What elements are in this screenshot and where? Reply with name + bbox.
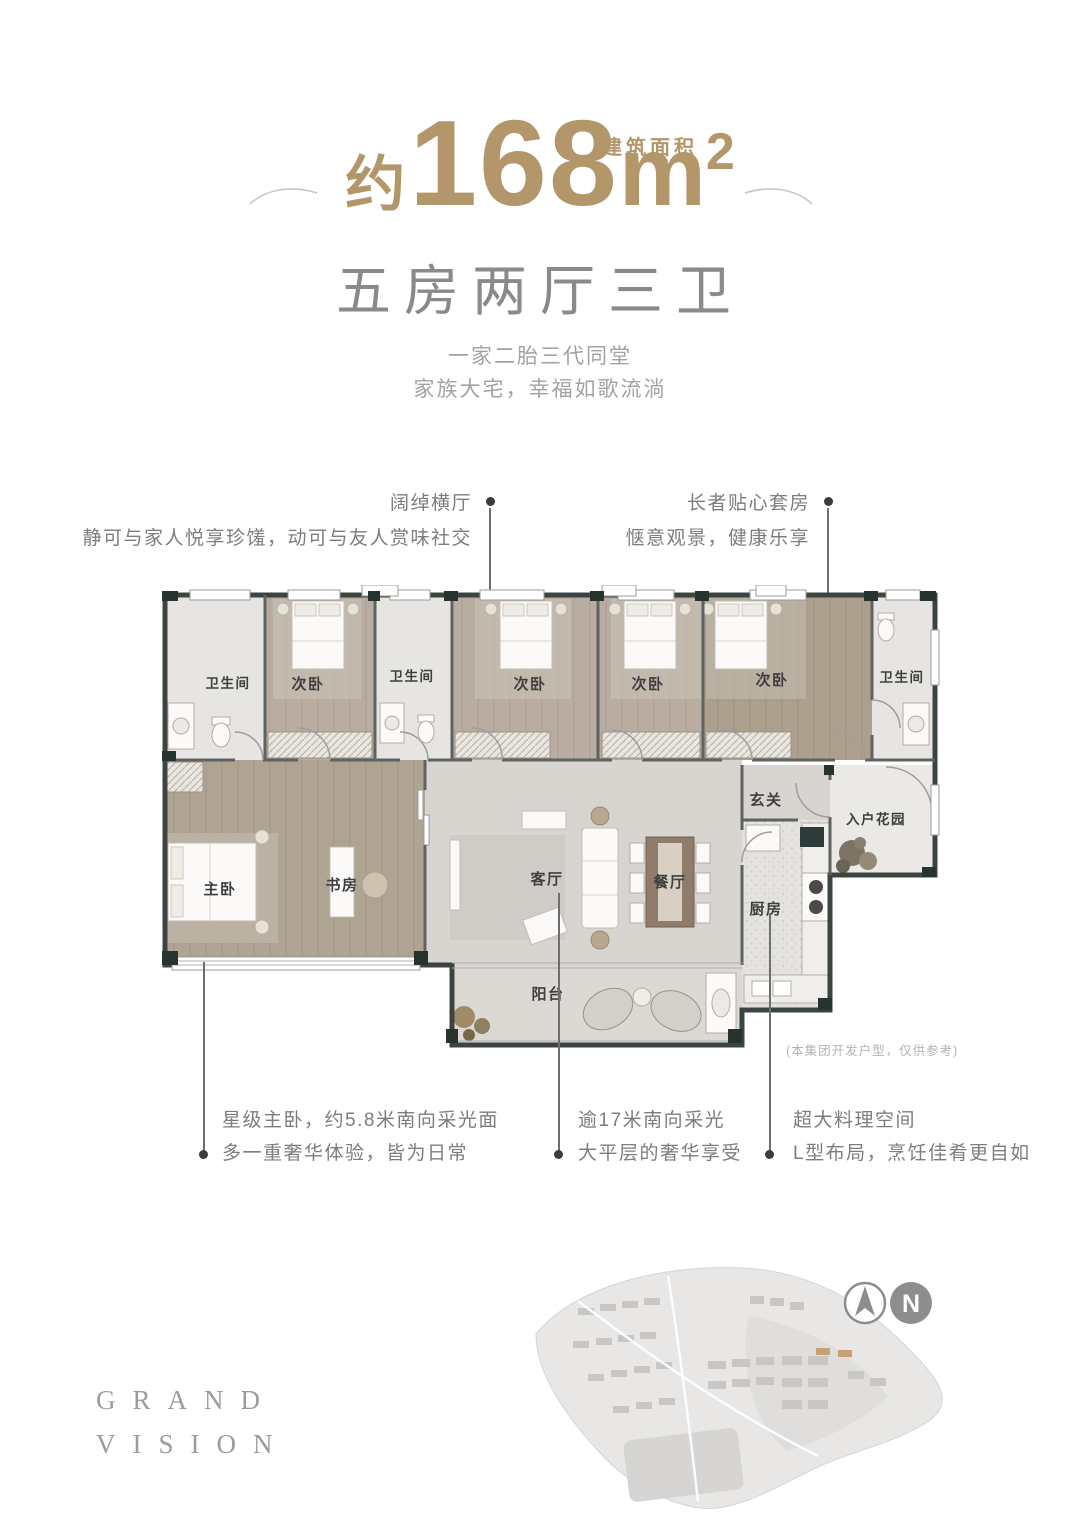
callout-lighting: 逾17米南向采光 大平层的奢华享受	[578, 1104, 742, 1170]
room-label-bedroom-2: 次卧	[513, 675, 546, 693]
room-label-dining-room: 餐厅	[653, 873, 686, 891]
brand-line2: VISION	[96, 1422, 290, 1466]
swoosh-left-icon	[248, 182, 320, 208]
compass-n-letter: N	[902, 1290, 920, 1318]
floorplan-poster: 建筑面积 约168m2 五房两厅三卫 一家二胎三代同堂 家族大宅，幸福如歌流淌 …	[0, 0, 1080, 1513]
callout-master-line1: 星级主卧，约5.8米南向采光面	[222, 1104, 499, 1137]
room-label-foyer: 玄关	[749, 791, 782, 809]
callout-lighting-line2: 大平层的奢华享受	[578, 1137, 742, 1170]
room-label-kitchen: 厨房	[749, 900, 782, 918]
callout-elder-desc: 惬意观景，健康乐享	[500, 522, 810, 555]
callout-kitchen-line1: 超大料理空间	[793, 1104, 1031, 1137]
room-label-bedroom-4: 次卧	[755, 671, 788, 689]
room-label-study: 书房	[325, 876, 358, 894]
callout-hall: 阔绰横厅 静可与家人悦享珍馐，动可与友人赏味社交	[0, 487, 472, 555]
callout-lighting-line	[558, 893, 560, 1151]
area-approx: 约	[345, 155, 405, 215]
callout-master-line2: 多一重奢华体验，皆为日常	[222, 1137, 499, 1170]
callout-hall-dot	[486, 497, 495, 506]
floor-plan: 卫生间 次卧 卫生间 次卧 次卧 次卧 卫生间 玄关 入户花园 主卧 书房 客厅…	[150, 585, 950, 1065]
bed-4	[702, 597, 806, 699]
callout-kitchen-line	[769, 913, 771, 1151]
tagline-line1: 一家二胎三代同堂	[0, 340, 1080, 370]
area-unit: m	[619, 122, 706, 220]
callout-elder-title: 长者贴心套房	[500, 487, 810, 520]
tagline-line2: 家族大宅，幸福如歌流淌	[0, 373, 1080, 403]
callout-master-dot	[199, 1150, 208, 1159]
room-label-bath-2: 卫生间	[390, 668, 435, 684]
callout-hall-title: 阔绰横厅	[0, 487, 472, 520]
room-label-bedroom-3: 次卧	[631, 675, 664, 693]
area-exponent: 2	[706, 126, 735, 178]
callout-master: 星级主卧，约5.8米南向采光面 多一重奢华体验，皆为日常	[222, 1104, 499, 1170]
callout-lighting-line1: 逾17米南向采光	[578, 1104, 742, 1137]
disclaimer: (本集团开发户型，仅供参考)	[786, 1040, 958, 1059]
area-number: 168	[409, 102, 619, 224]
room-label-bath-3: 卫生间	[880, 669, 925, 685]
swoosh-right-icon	[742, 182, 814, 208]
callout-master-line	[203, 962, 205, 1152]
area-headline: 约168m2	[0, 102, 1080, 224]
callout-kitchen: 超大料理空间 L型布局，烹饪佳肴更自如	[793, 1104, 1031, 1170]
room-label-bedroom-1: 次卧	[291, 675, 324, 693]
callout-elder: 长者贴心套房 惬意观景，健康乐享	[500, 487, 810, 555]
brand-line1: GRAND	[96, 1378, 290, 1422]
room-label-bath-1: 卫生间	[206, 675, 251, 691]
compass-icon: N	[842, 1280, 938, 1328]
brand-logo: GRAND VISION	[96, 1378, 290, 1466]
callout-lighting-dot	[554, 1150, 563, 1159]
room-label-master-bedroom: 主卧	[203, 880, 236, 898]
callout-kitchen-line2: L型布局，烹饪佳肴更自如	[793, 1137, 1031, 1170]
callout-hall-desc: 静可与家人悦享珍馐，动可与友人赏味社交	[0, 522, 472, 555]
layout-title: 五房两厅三卫	[0, 246, 1080, 326]
callout-elder-dot	[824, 497, 833, 506]
callout-kitchen-dot	[765, 1150, 774, 1159]
room-label-living-room: 客厅	[529, 870, 563, 888]
room-label-entry-garden: 入户花园	[846, 811, 906, 827]
